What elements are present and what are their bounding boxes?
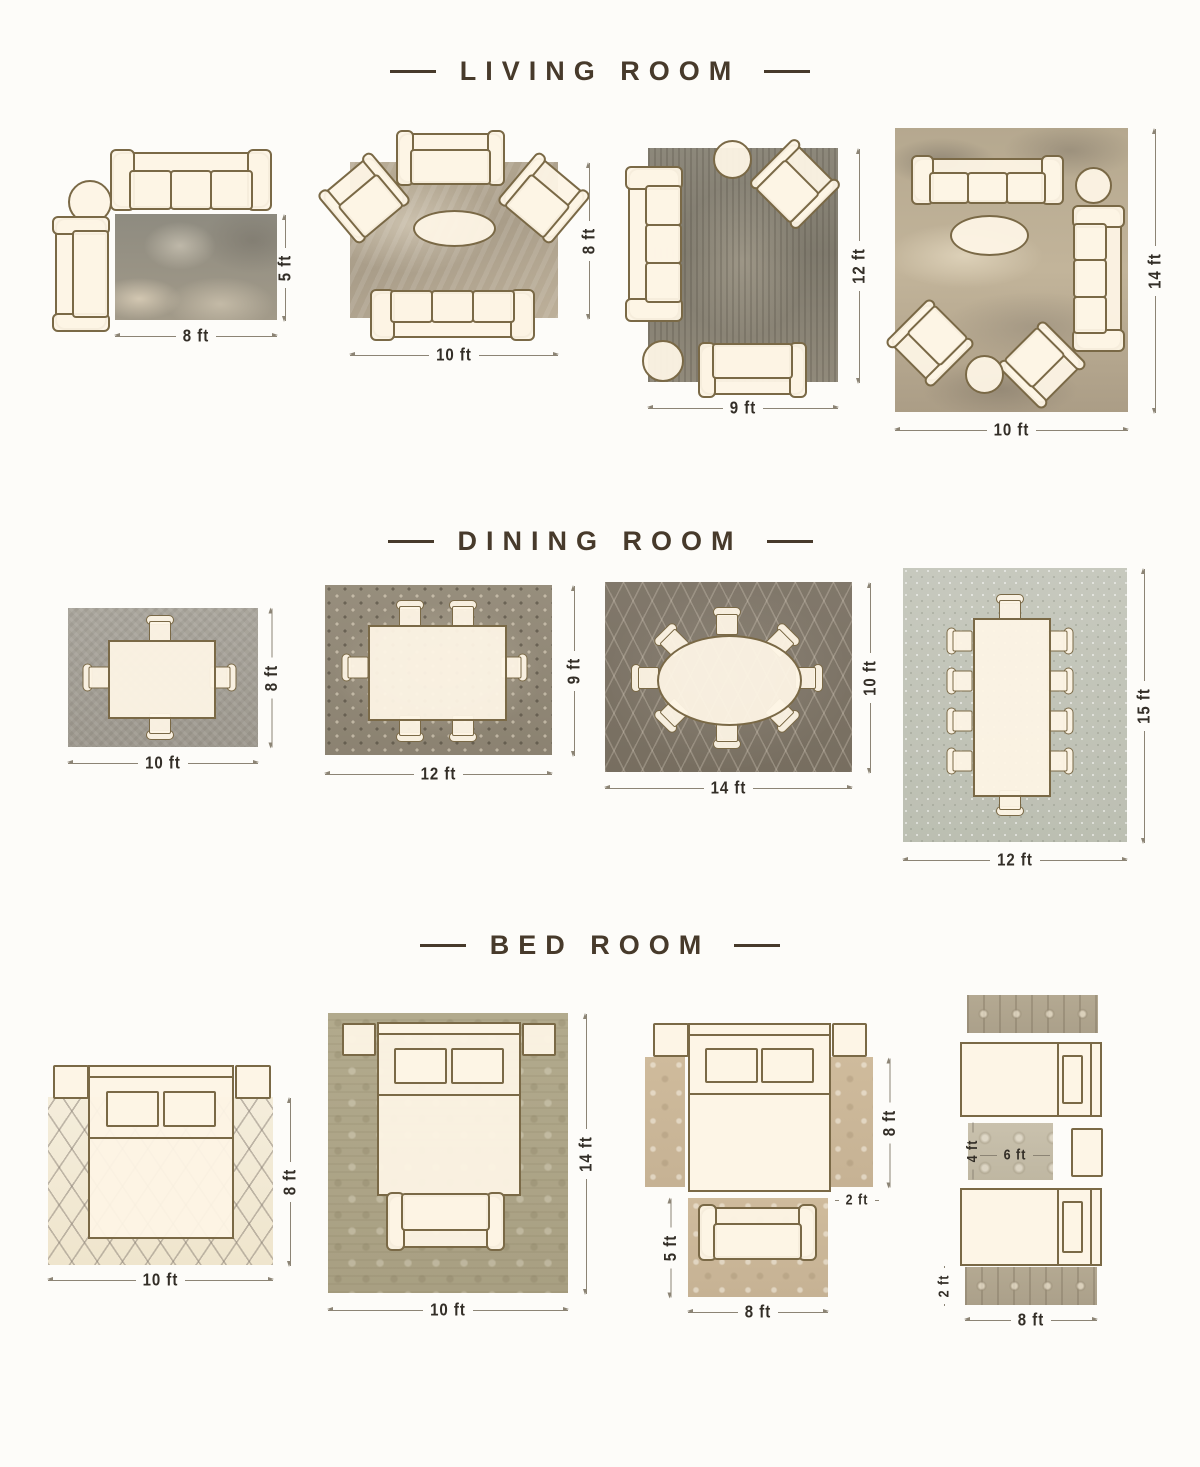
dimension-line bbox=[1040, 860, 1127, 861]
rug bbox=[115, 214, 277, 320]
pillow bbox=[705, 1048, 758, 1083]
rug-height-dimension: 12 ft bbox=[851, 149, 867, 383]
dimension-line bbox=[463, 774, 552, 775]
dimension-line bbox=[1144, 569, 1145, 681]
sofa-cushions bbox=[929, 172, 1045, 204]
section-title-text: BED ROOM bbox=[490, 930, 711, 961]
dimension-line bbox=[271, 698, 272, 747]
dimension-line bbox=[290, 1202, 291, 1266]
headboard bbox=[377, 1022, 521, 1035]
dining-chair bbox=[947, 629, 973, 654]
dimension-line bbox=[895, 430, 987, 431]
nightstand bbox=[522, 1023, 556, 1056]
rug-height-dimension: 8 ft bbox=[282, 1098, 298, 1266]
headboard bbox=[88, 1065, 234, 1078]
pillow bbox=[1062, 1055, 1084, 1105]
living-room-section-title: LIVING ROOM bbox=[0, 56, 1200, 87]
dimension-label: 10 ft bbox=[994, 420, 1030, 440]
title-dash bbox=[764, 70, 810, 73]
sofa-cushion bbox=[967, 172, 1007, 204]
dimension-line bbox=[763, 408, 838, 409]
twin-bed bbox=[960, 1188, 1102, 1266]
blanket-fold-line bbox=[377, 1094, 521, 1096]
dining-room-section-title: DINING ROOM bbox=[0, 526, 1200, 557]
nightstand bbox=[342, 1023, 376, 1056]
blanket-fold-line bbox=[88, 1137, 234, 1139]
dimension-line bbox=[290, 1098, 291, 1162]
living-layout-2: 8 ft 10 ft bbox=[330, 120, 605, 370]
sofa-cushions bbox=[129, 170, 252, 210]
dining-layout-1: 8 ft 10 ft bbox=[58, 592, 298, 777]
chair-seat bbox=[348, 656, 369, 678]
side-table bbox=[713, 140, 752, 179]
section-title-text: LIVING ROOM bbox=[460, 56, 741, 87]
dimension-line bbox=[350, 355, 429, 356]
chair-seat bbox=[399, 606, 421, 627]
coffee-table bbox=[413, 210, 496, 247]
bed-room-section-title: BED ROOM bbox=[0, 930, 1200, 961]
dimension-label: 12 ft bbox=[421, 764, 457, 784]
chair-seat bbox=[953, 710, 973, 732]
dimension-label: 14 ft bbox=[711, 778, 747, 798]
dimension-line bbox=[1155, 296, 1156, 413]
dimension-line bbox=[972, 1123, 973, 1133]
dimension-line bbox=[670, 1199, 671, 1228]
section-title-text: DINING ROOM bbox=[458, 526, 743, 557]
bed bbox=[688, 1023, 831, 1192]
pillow bbox=[394, 1048, 447, 1084]
dimension-line bbox=[903, 860, 990, 861]
sofa-cushions bbox=[713, 1223, 803, 1260]
sofa-cushion bbox=[645, 185, 682, 226]
rug-height-dimension: 8 ft bbox=[264, 609, 280, 748]
rug-size-guide: LIVING ROOM 5 ft 8 ft bbox=[0, 0, 1200, 1467]
rug-width-dimension: 10 ft bbox=[68, 755, 258, 771]
sofa-cushion bbox=[401, 1193, 491, 1231]
nightstand bbox=[235, 1065, 271, 1099]
runner-width-dimension: 2 ft bbox=[835, 1193, 879, 1207]
chair-seat bbox=[638, 667, 659, 689]
dining-chair bbox=[1048, 629, 1074, 654]
title-dash bbox=[767, 540, 813, 543]
dining-layout-4: 15 ft 12 ft bbox=[898, 568, 1173, 868]
bench bbox=[700, 1207, 815, 1258]
bench bbox=[388, 1195, 503, 1248]
pillow bbox=[451, 1048, 504, 1084]
dining-layout-3: 10 ft 14 ft bbox=[600, 575, 885, 797]
rug-width-dimension: 9 ft bbox=[648, 400, 838, 416]
rug-height-dimension: 8 ft bbox=[581, 163, 597, 319]
dining-chair bbox=[147, 615, 173, 642]
dining-chair bbox=[1048, 749, 1074, 774]
bed bbox=[377, 1022, 521, 1196]
dimension-line bbox=[889, 1059, 890, 1103]
blanket-fold-line bbox=[1057, 1188, 1059, 1266]
dimension-line bbox=[285, 215, 286, 248]
foot-rug-height-dimension: 5 ft bbox=[663, 1199, 679, 1298]
dining-chair bbox=[997, 594, 1023, 620]
sofa-cushions bbox=[1073, 223, 1107, 335]
dimension-label: 12 ft bbox=[849, 248, 869, 284]
dimension-line bbox=[648, 408, 723, 409]
rug-height-dimension: 15 ft bbox=[1136, 569, 1152, 843]
dining-chair bbox=[947, 749, 973, 774]
rug-width-dimension: 12 ft bbox=[325, 766, 552, 782]
loveseat bbox=[55, 218, 107, 330]
chair-seat bbox=[716, 614, 738, 635]
dimension-label: 14 ft bbox=[576, 1136, 596, 1172]
pillow bbox=[163, 1091, 217, 1127]
dimension-label: 9 ft bbox=[564, 658, 584, 685]
title-dash bbox=[390, 70, 436, 73]
dimension-line bbox=[271, 609, 272, 658]
nightstand bbox=[653, 1023, 689, 1057]
dimension-line bbox=[328, 1310, 423, 1311]
rug-width-dimension: 10 ft bbox=[48, 1272, 273, 1288]
pillow bbox=[761, 1048, 814, 1083]
sofa-cushion bbox=[929, 172, 969, 204]
sofa-cushion bbox=[1073, 223, 1107, 262]
rug-width-dimension: 10 ft bbox=[328, 1302, 568, 1318]
living-layout-3: 12 ft 9 ft bbox=[618, 128, 878, 420]
dimension-label: 9 ft bbox=[730, 398, 757, 418]
dining-chair bbox=[83, 665, 110, 691]
side-table bbox=[965, 355, 1004, 394]
dimension-line bbox=[670, 1268, 671, 1297]
dining-table bbox=[108, 640, 216, 719]
accent-rug-height-dimension: 4 ft bbox=[966, 1123, 980, 1180]
dimension-label: 2 ft bbox=[936, 1275, 952, 1298]
dining-table bbox=[973, 618, 1051, 797]
sofa-cushion bbox=[72, 230, 109, 317]
sofa bbox=[112, 152, 270, 208]
blanket-fold-line bbox=[1057, 1042, 1059, 1117]
dimension-line bbox=[285, 288, 286, 321]
dimension-line bbox=[589, 261, 590, 319]
dimension-line bbox=[574, 586, 575, 651]
sofa-cushions bbox=[645, 185, 682, 304]
accent-rug-width-dimension: 6 ft bbox=[980, 1148, 1050, 1162]
chair-seat bbox=[953, 630, 973, 652]
dimension-label: 6 ft bbox=[1004, 1147, 1027, 1163]
sofa-cushion bbox=[390, 290, 433, 323]
runner-rug bbox=[645, 1057, 685, 1187]
foot-rug-width-dimension: 8 ft bbox=[688, 1304, 828, 1320]
chair-seat bbox=[953, 670, 973, 692]
pillow bbox=[106, 1091, 160, 1127]
dining-chair bbox=[450, 600, 476, 627]
sofa-cushion bbox=[712, 343, 794, 379]
dimension-line bbox=[778, 1312, 828, 1313]
dimension-line bbox=[972, 1169, 973, 1179]
dimension-line bbox=[479, 355, 558, 356]
dimension-line bbox=[965, 1320, 1011, 1321]
sofa-cushions bbox=[410, 149, 492, 185]
sofa-cushion bbox=[1073, 259, 1107, 298]
dimension-line bbox=[1144, 731, 1145, 843]
dimension-label: 8 ft bbox=[262, 665, 282, 692]
dimension-line bbox=[1155, 129, 1156, 246]
sofa-cushion bbox=[431, 290, 474, 323]
dimension-label: 8 ft bbox=[1018, 1310, 1045, 1330]
dimension-line bbox=[875, 1200, 879, 1201]
dimension-label: 5 ft bbox=[661, 1235, 681, 1262]
sofa-cushion bbox=[170, 170, 212, 210]
sofa-cushion bbox=[1006, 172, 1046, 204]
dining-chair bbox=[1048, 709, 1074, 734]
dining-table bbox=[368, 625, 507, 721]
dining-chair bbox=[1048, 669, 1074, 694]
bedroom-layout-4: 4 ft 6 ft 2 ft 8 ft bbox=[930, 985, 1180, 1330]
dimension-line bbox=[688, 1312, 738, 1313]
dimension-label: 8 ft bbox=[880, 1110, 900, 1137]
nightstand bbox=[1071, 1128, 1103, 1177]
dimension-line bbox=[586, 1014, 587, 1129]
bedroom-layout-3: 8 ft 2 ft 5 ft 8 ft bbox=[638, 1010, 898, 1322]
loveseat bbox=[700, 345, 805, 395]
dimension-line bbox=[980, 1155, 997, 1156]
sofa-cushion bbox=[210, 170, 252, 210]
coffee-table bbox=[950, 215, 1029, 256]
dining-chair bbox=[397, 600, 423, 627]
rug-width-dimension: 12 ft bbox=[903, 852, 1127, 868]
sofa-cushion bbox=[410, 149, 492, 185]
sofa-cushion bbox=[1073, 296, 1107, 335]
sofa-cushions bbox=[390, 290, 516, 323]
nightstand bbox=[53, 1065, 89, 1099]
dimension-label: 8 ft bbox=[745, 1302, 772, 1322]
dimension-label: 10 ft bbox=[430, 1300, 466, 1320]
title-dash bbox=[388, 540, 434, 543]
living-layout-4: 14 ft 10 ft bbox=[893, 118, 1183, 440]
bed bbox=[88, 1065, 234, 1239]
sofa-cushion bbox=[645, 262, 682, 303]
sofa-cushions bbox=[712, 343, 794, 379]
runner-rug bbox=[967, 995, 1098, 1033]
dimension-line bbox=[48, 1280, 136, 1281]
dimension-label: 10 ft bbox=[436, 345, 472, 365]
rug-height-dimension: 9 ft bbox=[566, 586, 582, 756]
dimension-line bbox=[870, 703, 871, 773]
dining-chair bbox=[947, 669, 973, 694]
dimension-label: 8 ft bbox=[280, 1169, 300, 1196]
rug-width-dimension: 8 ft bbox=[115, 328, 277, 344]
dimension-line bbox=[1051, 1320, 1097, 1321]
dimension-line bbox=[859, 291, 860, 383]
rug-width-dimension: 10 ft bbox=[895, 422, 1128, 438]
bedroom-layout-2: 14 ft 10 ft bbox=[320, 1000, 610, 1320]
rug-height-dimension: 14 ft bbox=[578, 1014, 594, 1294]
rug-height-dimension: 5 ft bbox=[277, 215, 293, 321]
dimension-line bbox=[944, 1304, 945, 1306]
rug-width-dimension: 14 ft bbox=[605, 780, 852, 796]
sofa-cushion bbox=[472, 290, 515, 323]
sofa-cushion bbox=[713, 1223, 803, 1260]
bedroom-layout-1: 8 ft 10 ft bbox=[40, 1055, 310, 1295]
headboard bbox=[1090, 1042, 1102, 1117]
dimension-line bbox=[473, 1310, 568, 1311]
oval-dining-table bbox=[657, 635, 802, 726]
dining-chair bbox=[631, 665, 659, 691]
dimension-label: 10 ft bbox=[145, 753, 181, 773]
side-table bbox=[642, 340, 684, 382]
dimension-line bbox=[325, 774, 414, 775]
rug-height-dimension: 10 ft bbox=[862, 583, 878, 773]
chair-seat bbox=[149, 621, 171, 642]
dimension-label: 14 ft bbox=[1145, 253, 1165, 289]
dimension-line bbox=[753, 788, 852, 789]
rug-width-dimension: 10 ft bbox=[350, 347, 558, 363]
dimension-line bbox=[188, 763, 258, 764]
title-dash bbox=[734, 944, 780, 947]
chair-seat bbox=[452, 606, 474, 627]
runner-height-dimension: 8 ft bbox=[882, 1059, 898, 1188]
dimension-label: 10 ft bbox=[860, 660, 880, 696]
loveseat bbox=[398, 133, 503, 183]
sofa bbox=[628, 168, 680, 320]
dimension-line bbox=[1036, 430, 1128, 431]
dimension-line bbox=[586, 1179, 587, 1294]
headboard bbox=[688, 1023, 831, 1036]
dimension-line bbox=[870, 583, 871, 653]
runner-rug bbox=[830, 1057, 873, 1187]
dimension-line bbox=[68, 763, 138, 764]
dining-layout-2: 9 ft 12 ft bbox=[318, 578, 588, 788]
dimension-label: 4 ft bbox=[964, 1140, 980, 1163]
dimension-label: 15 ft bbox=[1134, 688, 1154, 724]
dimension-line bbox=[185, 1280, 273, 1281]
dimension-line bbox=[574, 691, 575, 756]
dimension-line bbox=[115, 336, 176, 337]
twin-bed bbox=[960, 1042, 1102, 1117]
dimension-label: 8 ft bbox=[183, 326, 210, 346]
nightstand bbox=[832, 1023, 867, 1057]
side-table bbox=[1075, 167, 1112, 204]
sofa bbox=[372, 292, 533, 338]
dimension-line bbox=[889, 1143, 890, 1187]
dimension-line bbox=[835, 1200, 839, 1201]
pillow bbox=[1062, 1201, 1084, 1253]
chair-seat bbox=[953, 750, 973, 772]
sofa-cushion bbox=[645, 224, 682, 265]
sofa-cushion bbox=[129, 170, 171, 210]
dimension-line bbox=[1033, 1155, 1050, 1156]
headboard bbox=[1090, 1188, 1102, 1266]
sofa bbox=[913, 158, 1062, 202]
runner-height-dimension: 2 ft bbox=[937, 1266, 951, 1306]
chair-seat bbox=[89, 666, 110, 688]
dining-chair bbox=[947, 709, 973, 734]
sofa-cushions bbox=[401, 1193, 491, 1231]
dimension-label: 12 ft bbox=[997, 850, 1033, 870]
rug-height-dimension: 14 ft bbox=[1147, 129, 1163, 413]
runner-rug bbox=[965, 1267, 1097, 1305]
dimension-line bbox=[859, 149, 860, 241]
dimension-line bbox=[216, 336, 277, 337]
title-dash bbox=[420, 944, 466, 947]
runner-width-dimension: 8 ft bbox=[965, 1312, 1097, 1328]
dining-chair bbox=[342, 655, 369, 681]
living-layout-1: 5 ft 8 ft bbox=[50, 128, 300, 353]
dining-chair bbox=[714, 607, 740, 635]
dimension-label: 10 ft bbox=[143, 1270, 179, 1290]
dimension-label: 5 ft bbox=[275, 255, 295, 282]
dimension-line bbox=[589, 163, 590, 221]
dimension-line bbox=[605, 788, 704, 789]
dimension-line bbox=[944, 1266, 945, 1268]
sofa bbox=[1075, 207, 1122, 350]
dimension-label: 2 ft bbox=[846, 1192, 869, 1208]
sofa-cushions bbox=[72, 230, 109, 317]
dimension-label: 8 ft bbox=[579, 228, 599, 255]
blanket-fold-line bbox=[688, 1093, 831, 1095]
